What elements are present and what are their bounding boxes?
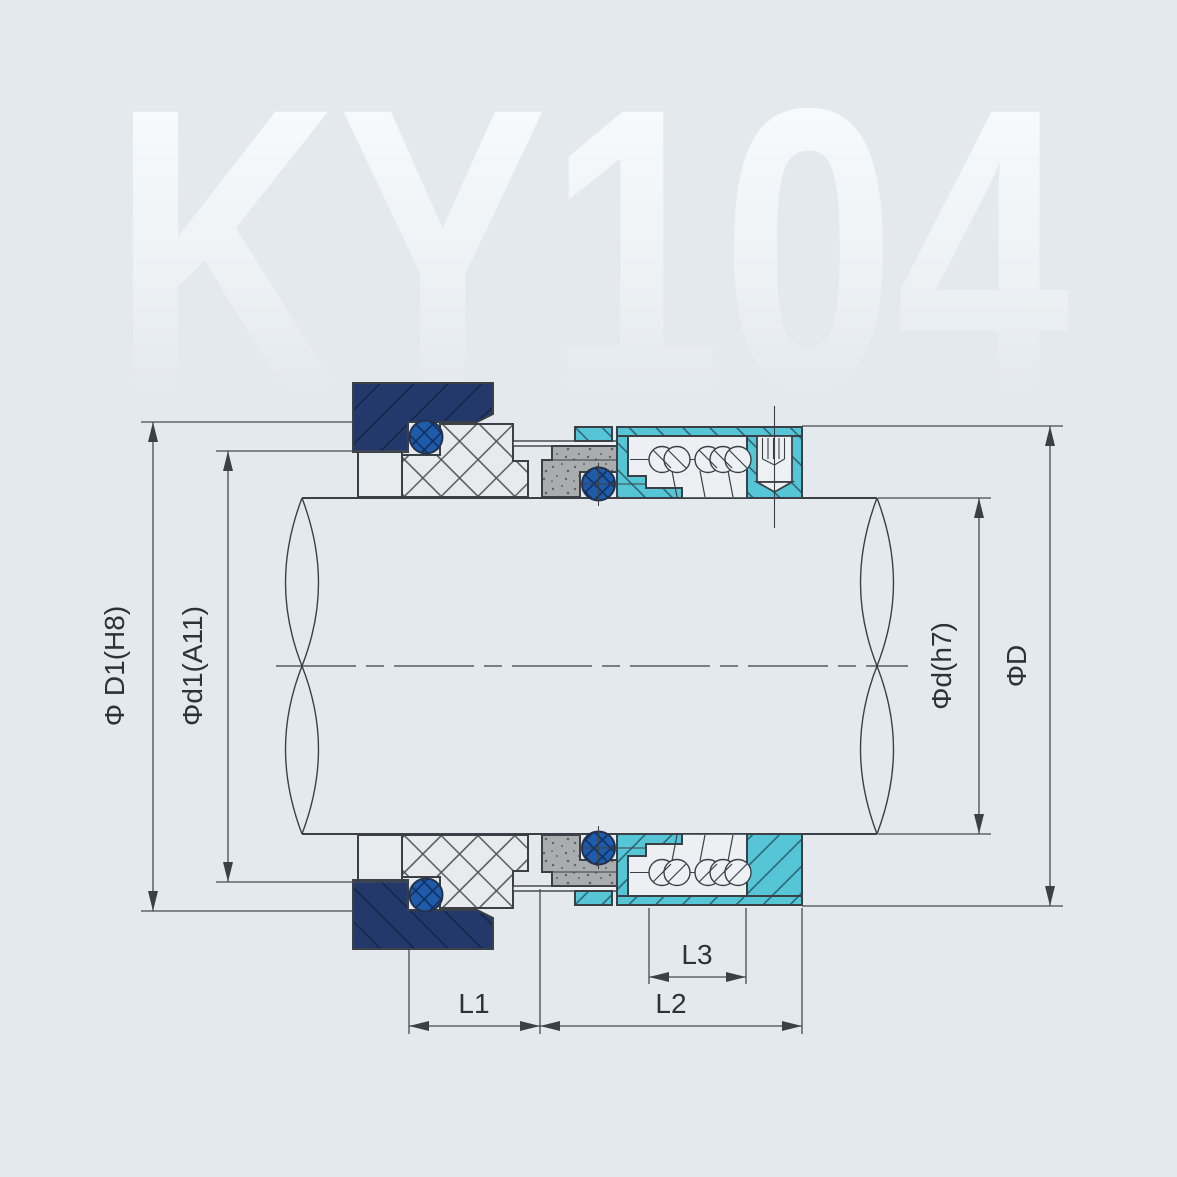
seal-cross-section-diagram: KY104 xyxy=(0,0,1177,1177)
label-outer-diameter: ΦD xyxy=(1001,645,1032,688)
watermark-text: KY104 xyxy=(112,25,1072,472)
label-shaft-diameter: Φd(h7) xyxy=(926,622,957,710)
label-l3: L3 xyxy=(681,939,712,970)
seal-drawing-page: KY104 xyxy=(0,0,1177,1177)
drive-lip xyxy=(575,427,612,441)
label-d1-outer: Φ D1(H8) xyxy=(99,606,130,726)
gland-bore-box xyxy=(358,452,402,497)
label-l1: L1 xyxy=(458,988,489,1019)
oring-primary xyxy=(410,421,443,454)
label-l2: L2 xyxy=(655,988,686,1019)
label-d1-inner: Φd1(A11) xyxy=(177,606,208,726)
